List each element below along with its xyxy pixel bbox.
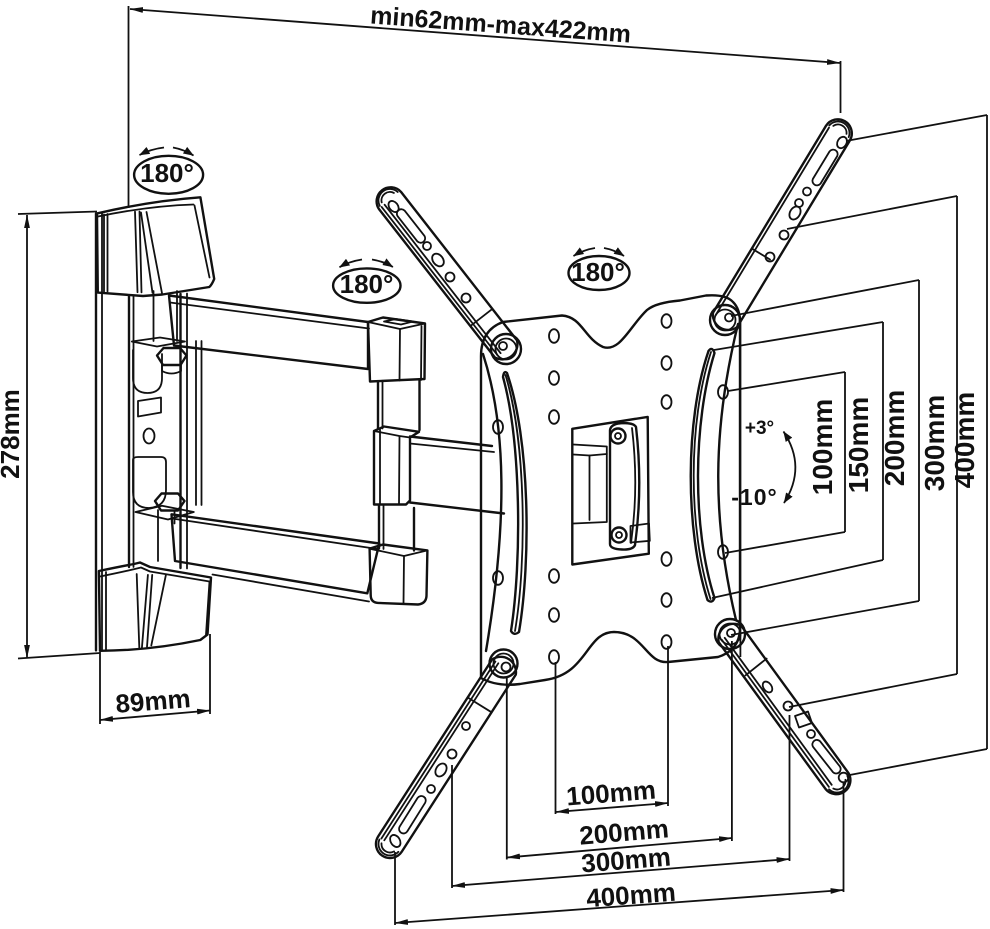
svg-text:200mm: 200mm xyxy=(879,390,910,487)
svg-text:300mm: 300mm xyxy=(919,395,950,492)
svg-text:-10°: -10° xyxy=(731,484,777,510)
svg-text:89mm: 89mm xyxy=(114,683,191,719)
svg-text:180°: 180° xyxy=(140,158,194,188)
svg-text:180°: 180° xyxy=(571,257,625,287)
svg-text:+3°: +3° xyxy=(745,418,774,439)
svg-text:400mm: 400mm xyxy=(949,392,980,489)
svg-text:180°: 180° xyxy=(340,269,394,299)
svg-text:150mm: 150mm xyxy=(843,397,874,494)
svg-text:278mm: 278mm xyxy=(0,389,25,479)
svg-text:100mm: 100mm xyxy=(807,399,838,496)
